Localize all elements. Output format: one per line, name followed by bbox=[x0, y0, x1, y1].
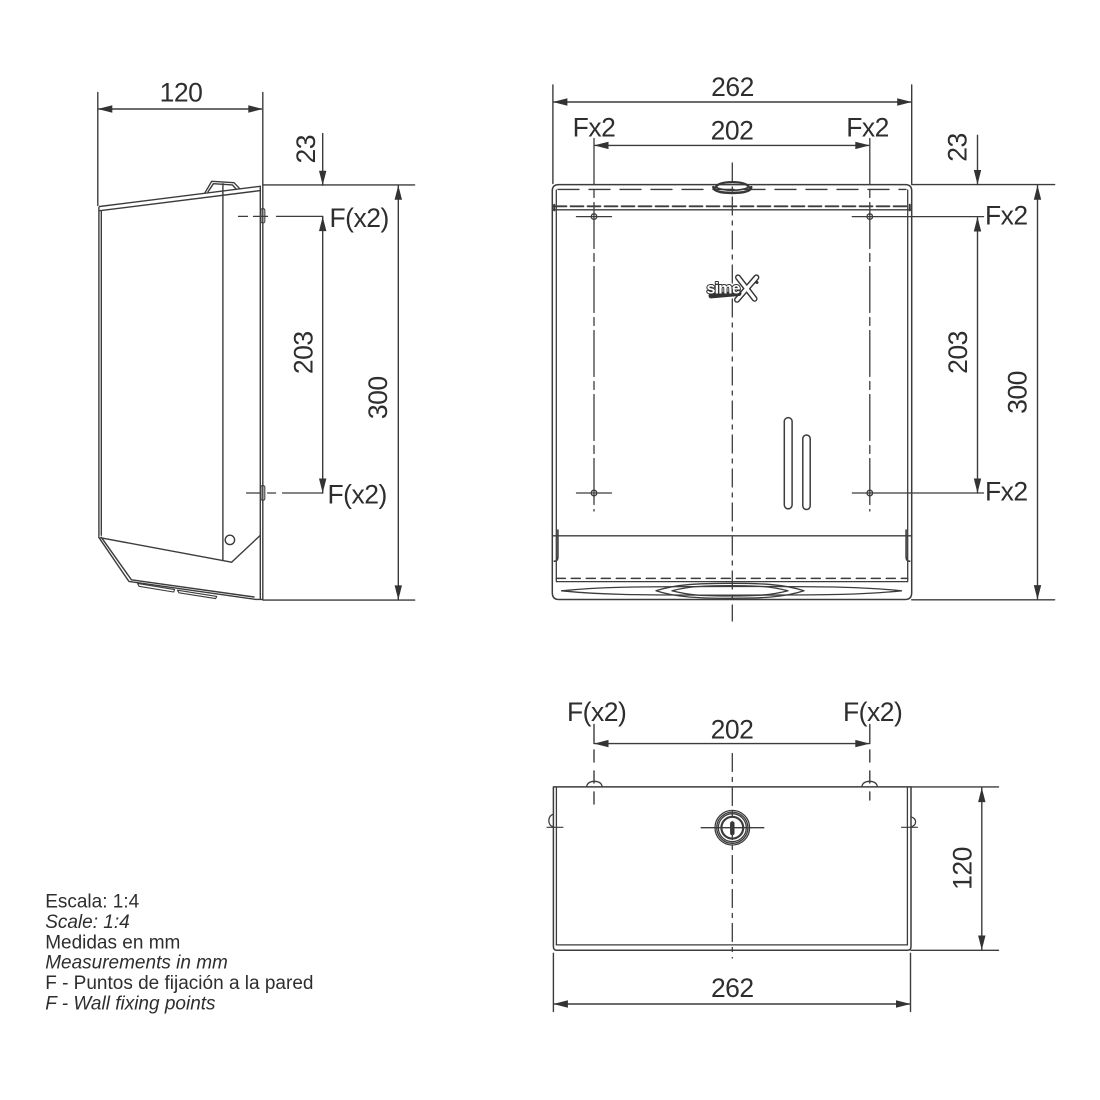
svg-text:F - Puntos de fijación a la pa: F - Puntos de fijación a la pared bbox=[45, 973, 313, 994]
svg-text:262: 262 bbox=[711, 72, 754, 102]
svg-text:23: 23 bbox=[291, 135, 321, 163]
svg-text:23: 23 bbox=[943, 133, 973, 161]
svg-text:F(x2): F(x2) bbox=[330, 203, 389, 233]
svg-text:F(x2): F(x2) bbox=[328, 479, 387, 509]
svg-text:Fx2: Fx2 bbox=[573, 112, 616, 142]
svg-text:203: 203 bbox=[288, 331, 318, 374]
svg-text:120: 120 bbox=[948, 847, 978, 890]
svg-text:120: 120 bbox=[160, 78, 203, 108]
svg-text:Fx2: Fx2 bbox=[985, 200, 1028, 230]
svg-text:F(x2): F(x2) bbox=[843, 697, 902, 727]
svg-text:300: 300 bbox=[363, 376, 393, 419]
svg-text:Escala: 1:4: Escala: 1:4 bbox=[45, 892, 139, 913]
svg-text:sime: sime bbox=[707, 281, 741, 298]
svg-text:F(x2): F(x2) bbox=[567, 697, 626, 727]
svg-text:202: 202 bbox=[711, 715, 754, 745]
svg-text:203: 203 bbox=[943, 331, 973, 374]
svg-text:Fx2: Fx2 bbox=[846, 112, 889, 142]
svg-text:202: 202 bbox=[711, 115, 754, 145]
svg-text:Medidas en mm: Medidas en mm bbox=[45, 932, 180, 953]
svg-text:262: 262 bbox=[711, 973, 754, 1003]
svg-text:Scale: 1:4: Scale: 1:4 bbox=[45, 912, 130, 933]
svg-text:300: 300 bbox=[1003, 371, 1033, 414]
svg-text:F - Wall fixing points: F - Wall fixing points bbox=[45, 994, 216, 1015]
svg-text:Fx2: Fx2 bbox=[985, 477, 1028, 507]
svg-text:Measurements in mm: Measurements in mm bbox=[45, 953, 228, 974]
